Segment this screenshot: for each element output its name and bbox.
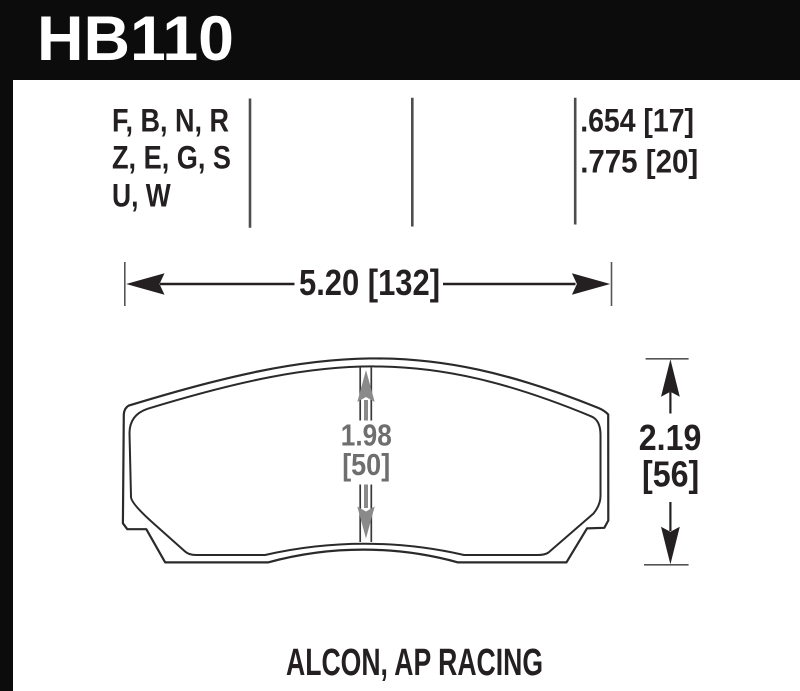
svg-text:Z, E, G, S: Z, E, G, S xyxy=(112,140,231,176)
svg-text:[50]: [50] xyxy=(342,448,390,482)
svg-text:.775 [20]: .775 [20] xyxy=(580,144,698,180)
svg-text:2.19: 2.19 xyxy=(639,417,702,458)
svg-text:F, B, N, R: F, B, N, R xyxy=(112,103,229,139)
svg-text:U, W: U, W xyxy=(112,178,171,214)
svg-text:.654 [17]: .654 [17] xyxy=(580,103,694,139)
svg-text:HB110: HB110 xyxy=(37,4,234,74)
svg-text:5.20 [132]: 5.20 [132] xyxy=(299,262,440,303)
svg-text:[56]: [56] xyxy=(642,454,699,495)
svg-text:ALCON, AP RACING: ALCON, AP RACING xyxy=(286,641,543,684)
